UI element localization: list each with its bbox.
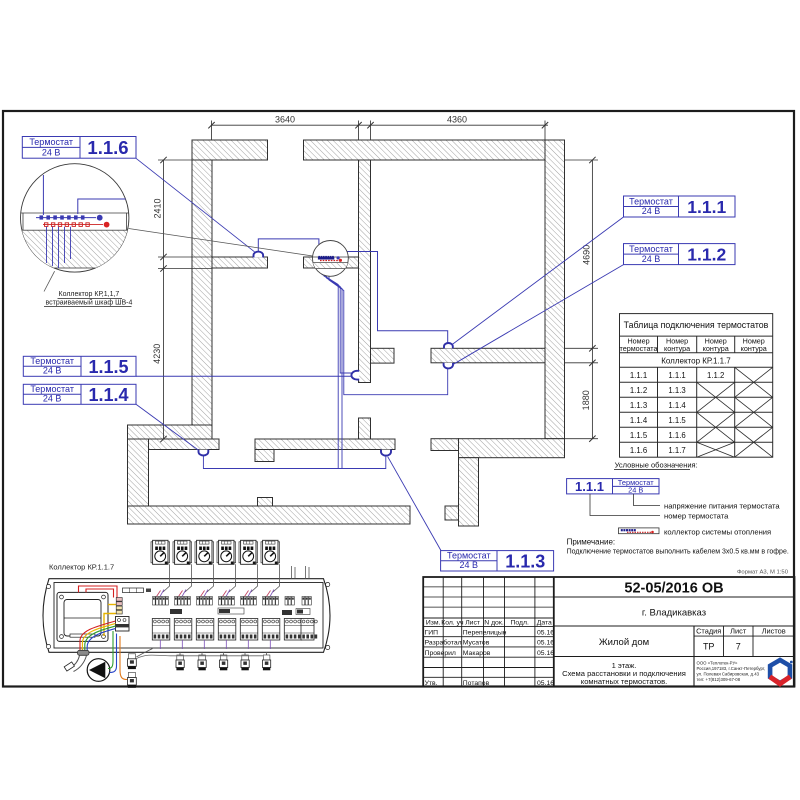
svg-text:4690: 4690 bbox=[581, 245, 591, 265]
svg-text:Проверил: Проверил bbox=[425, 650, 456, 657]
svg-text:Мусатов: Мусатов bbox=[463, 640, 490, 647]
svg-text:Изм.: Изм. bbox=[426, 620, 441, 627]
svg-text:1.1.2: 1.1.2 bbox=[707, 371, 724, 380]
svg-text:Примечание:: Примечание: bbox=[567, 537, 616, 546]
svg-text:тел: +7(812)309-67-08: тел: +7(812)309-67-08 bbox=[697, 677, 741, 682]
svg-text:контура: контура bbox=[741, 344, 767, 353]
svg-text:05.16: 05.16 bbox=[537, 640, 554, 647]
svg-text:1.1.7: 1.1.7 bbox=[668, 446, 685, 455]
svg-text:24 В: 24 В bbox=[642, 254, 661, 264]
svg-text:52-05/2016 ОВ: 52-05/2016 ОВ bbox=[624, 581, 723, 597]
svg-text:1.1.1: 1.1.1 bbox=[630, 371, 647, 380]
svg-text:1.1.3: 1.1.3 bbox=[630, 401, 647, 410]
svg-text:Дата: Дата bbox=[537, 620, 552, 627]
svg-text:7: 7 bbox=[736, 642, 741, 652]
svg-text:Коллектор КР,1,1,7: Коллектор КР,1,1,7 bbox=[59, 291, 120, 298]
svg-text:встраиваемый шкаф ШВ-4: встраиваемый шкаф ШВ-4 bbox=[46, 298, 133, 306]
svg-text:N док.: N док. bbox=[484, 620, 504, 627]
svg-text:Перепелицын: Перепелицын bbox=[463, 630, 507, 637]
svg-text:ГИП: ГИП bbox=[425, 630, 439, 637]
svg-text:Термостат: Термостат bbox=[629, 196, 673, 206]
svg-text:3640: 3640 bbox=[275, 115, 295, 125]
svg-text:Жилой дом: Жилой дом bbox=[599, 637, 649, 648]
svg-text:ТР: ТР bbox=[703, 642, 715, 652]
svg-text:Подключение термостатов выполн: Подключение термостатов выполнить кабеле… bbox=[567, 548, 789, 556]
svg-text:1.1.5: 1.1.5 bbox=[630, 431, 648, 440]
svg-text:1.1.4: 1.1.4 bbox=[668, 401, 686, 410]
svg-text:Термостат: Термостат bbox=[629, 244, 673, 254]
svg-text:номер термостата: номер термостата bbox=[664, 511, 729, 520]
svg-text:24 В: 24 В bbox=[43, 394, 62, 404]
svg-text:напряжение питания термостата: напряжение питания термостата bbox=[664, 501, 780, 510]
svg-text:1.1.4: 1.1.4 bbox=[88, 385, 128, 405]
svg-text:Кол. уч: Кол. уч bbox=[441, 620, 464, 627]
svg-text:комнатных термостатов.: комнатных термостатов. bbox=[581, 677, 667, 686]
svg-text:Лист: Лист bbox=[465, 620, 480, 627]
svg-text:Формат А3, М 1:50: Формат А3, М 1:50 bbox=[737, 570, 789, 576]
svg-text:1.1.5: 1.1.5 bbox=[668, 416, 686, 425]
svg-text:24 В: 24 В bbox=[43, 366, 62, 376]
svg-text:1.1.6: 1.1.6 bbox=[630, 446, 647, 455]
svg-text:термостата: термостата bbox=[620, 344, 658, 353]
svg-text:1.1.6: 1.1.6 bbox=[668, 431, 685, 440]
svg-text:Условные обозначения:: Условные обозначения: bbox=[615, 461, 698, 470]
svg-text:Термостат: Термостат bbox=[29, 137, 73, 147]
svg-text:Разработал: Разработал bbox=[425, 639, 462, 647]
svg-text:Лист: Лист bbox=[730, 627, 747, 636]
svg-text:коллектор системы отопления: коллектор системы отопления bbox=[664, 527, 771, 536]
svg-text:1.1.3: 1.1.3 bbox=[505, 551, 545, 571]
svg-text:1.1.5: 1.1.5 bbox=[88, 357, 128, 377]
svg-text:Утв.: Утв. bbox=[425, 680, 438, 687]
svg-text:1.1.1: 1.1.1 bbox=[668, 371, 685, 380]
svg-text:контура: контура bbox=[664, 344, 690, 353]
svg-text:Листов: Листов bbox=[762, 627, 786, 636]
svg-text:контура: контура bbox=[703, 344, 729, 353]
svg-text:1.1.3: 1.1.3 bbox=[668, 386, 685, 395]
svg-text:05.16: 05.16 bbox=[537, 650, 554, 657]
svg-text:1.1.1: 1.1.1 bbox=[687, 197, 726, 217]
svg-text:Термостат: Термостат bbox=[447, 551, 491, 561]
svg-text:4230: 4230 bbox=[152, 344, 162, 364]
svg-text:05.16: 05.16 bbox=[537, 630, 554, 637]
svg-text:1880: 1880 bbox=[581, 390, 591, 410]
svg-text:Коллектор КР.1.1.7: Коллектор КР.1.1.7 bbox=[661, 357, 731, 366]
svg-text:4360: 4360 bbox=[447, 115, 467, 125]
svg-text:24 В: 24 В bbox=[42, 147, 61, 157]
svg-text:24 В: 24 В bbox=[642, 206, 661, 216]
svg-text:1.1.4: 1.1.4 bbox=[630, 416, 648, 425]
svg-text:1.1.1: 1.1.1 bbox=[575, 479, 604, 494]
svg-text:Таблица подключения термостато: Таблица подключения термостатов bbox=[624, 320, 769, 330]
svg-text:24 В: 24 В bbox=[628, 486, 643, 495]
svg-text:ООО «Теплотек-РУ»: ООО «Теплотек-РУ» bbox=[697, 661, 738, 666]
svg-text:2410: 2410 bbox=[153, 198, 163, 218]
svg-text:Подл.: Подл. bbox=[511, 620, 529, 627]
svg-text:05.16: 05.16 bbox=[537, 680, 554, 687]
svg-text:Россия,197183, г.Санкт-Петербу: Россия,197183, г.Санкт-Петербург, bbox=[697, 666, 766, 671]
svg-text:Стадия: Стадия bbox=[696, 627, 721, 636]
svg-text:г. Владикавказ: г. Владикавказ bbox=[642, 607, 706, 618]
svg-text:1.1.2: 1.1.2 bbox=[687, 244, 726, 264]
svg-text:1.1.6: 1.1.6 bbox=[87, 137, 128, 158]
svg-text:1.1.2: 1.1.2 bbox=[630, 386, 647, 395]
svg-text:Коллектор КР.1.1.7: Коллектор КР.1.1.7 bbox=[49, 563, 114, 572]
svg-text:ул. Полевая Сабировская, д.43: ул. Полевая Сабировская, д.43 bbox=[697, 672, 760, 677]
svg-text:24 В: 24 В bbox=[460, 560, 479, 570]
svg-text:Потапов: Потапов bbox=[463, 680, 490, 687]
svg-text:Макаров: Макаров bbox=[463, 650, 491, 657]
